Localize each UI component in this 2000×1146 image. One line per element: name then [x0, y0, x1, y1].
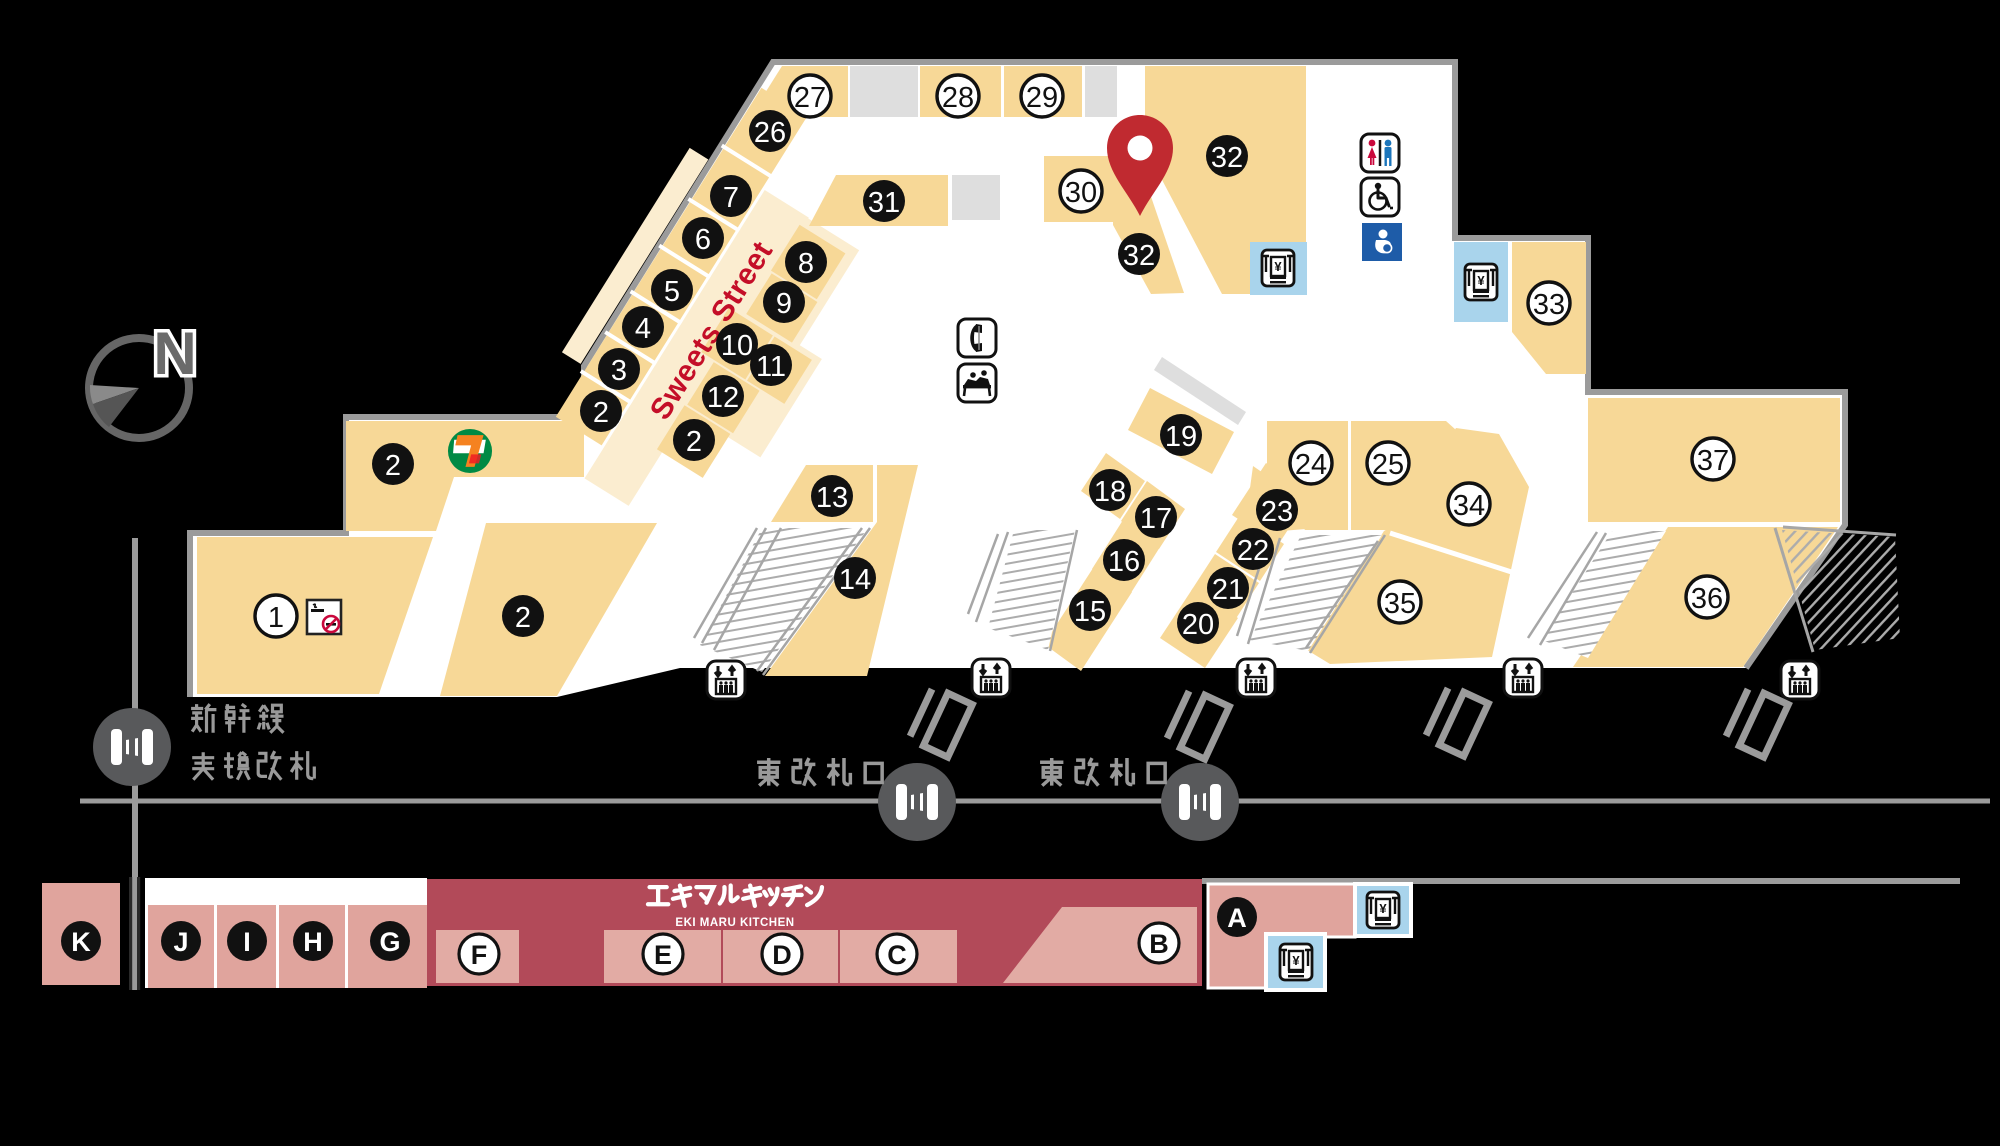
svg-text:J: J [173, 927, 188, 957]
svg-text:F: F [471, 940, 488, 970]
svg-text:15: 15 [1074, 596, 1106, 628]
svg-text:32: 32 [1123, 240, 1155, 272]
svg-text:22: 22 [1237, 535, 1269, 567]
svg-text:23: 23 [1261, 496, 1293, 528]
svg-text:10: 10 [721, 330, 753, 362]
svg-text:A: A [1227, 903, 1247, 933]
svg-text:I: I [243, 927, 251, 957]
svg-text:33: 33 [1533, 289, 1565, 321]
svg-text:D: D [772, 940, 792, 970]
svg-text:30: 30 [1065, 177, 1097, 209]
svg-text:K: K [71, 927, 91, 957]
svg-text:29: 29 [1026, 82, 1058, 114]
svg-text:1: 1 [268, 602, 284, 634]
svg-text:25: 25 [1372, 449, 1404, 481]
svg-text:8: 8 [798, 248, 814, 280]
svg-text:21: 21 [1212, 574, 1244, 606]
svg-text:32: 32 [1211, 142, 1243, 174]
svg-text:2: 2 [385, 450, 401, 482]
svg-text:31: 31 [868, 187, 900, 219]
svg-text:28: 28 [942, 82, 974, 114]
svg-text:N: N [153, 320, 196, 387]
svg-text:C: C [887, 940, 907, 970]
svg-text:6: 6 [695, 224, 711, 256]
svg-text:G: G [379, 927, 400, 957]
svg-text:17: 17 [1140, 503, 1172, 535]
svg-text:36: 36 [1691, 583, 1723, 615]
svg-text:7: 7 [723, 182, 739, 214]
svg-text:E: E [654, 940, 672, 970]
svg-text:13: 13 [816, 482, 848, 514]
svg-text:19: 19 [1165, 421, 1197, 453]
svg-text:35: 35 [1384, 588, 1416, 620]
svg-text:24: 24 [1295, 449, 1327, 481]
svg-text:18: 18 [1094, 476, 1126, 508]
svg-text:H: H [303, 927, 323, 957]
svg-text:2: 2 [593, 397, 609, 429]
svg-text:20: 20 [1182, 609, 1214, 641]
svg-text:12: 12 [707, 382, 739, 414]
svg-text:2: 2 [515, 602, 531, 634]
svg-text:16: 16 [1108, 546, 1140, 578]
svg-text:37: 37 [1697, 445, 1729, 477]
svg-text:B: B [1149, 929, 1169, 959]
svg-text:26: 26 [754, 117, 786, 149]
svg-text:11: 11 [756, 351, 786, 383]
svg-text:2: 2 [686, 426, 702, 458]
svg-text:34: 34 [1453, 490, 1485, 522]
svg-text:27: 27 [794, 82, 826, 114]
svg-text:EKI MARU KITCHEN: EKI MARU KITCHEN [675, 917, 794, 929]
svg-text:4: 4 [635, 313, 651, 345]
svg-text:14: 14 [839, 564, 871, 596]
svg-text:3: 3 [611, 355, 627, 387]
svg-text:9: 9 [776, 288, 792, 320]
svg-text:5: 5 [664, 276, 680, 308]
